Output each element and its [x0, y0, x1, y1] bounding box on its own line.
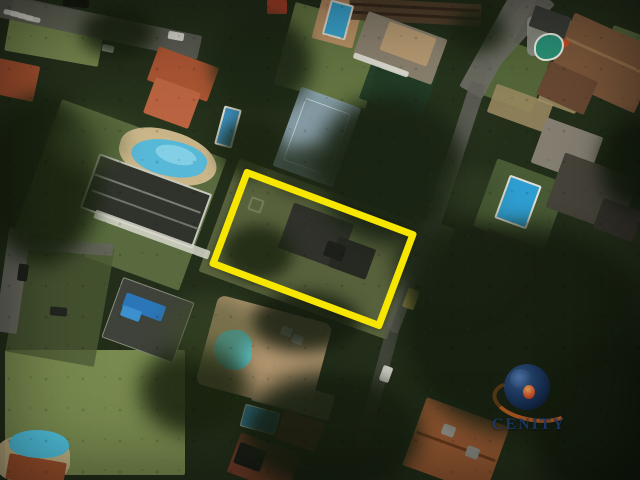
satellite-image: CENITY: [0, 0, 640, 480]
canopy-light: [440, 165, 500, 215]
trees-left-top: [81, 7, 156, 57]
pool-bottom-left: [9, 430, 69, 458]
trees-topright-road: [451, 8, 506, 53]
trees-bottom-center: [240, 372, 420, 480]
car-dark: [49, 306, 67, 316]
canopy-light: [165, 295, 255, 365]
trees-center-top: [212, 15, 312, 110]
canopy-light: [55, 110, 125, 170]
house-top-red-dot: [267, 0, 287, 14]
